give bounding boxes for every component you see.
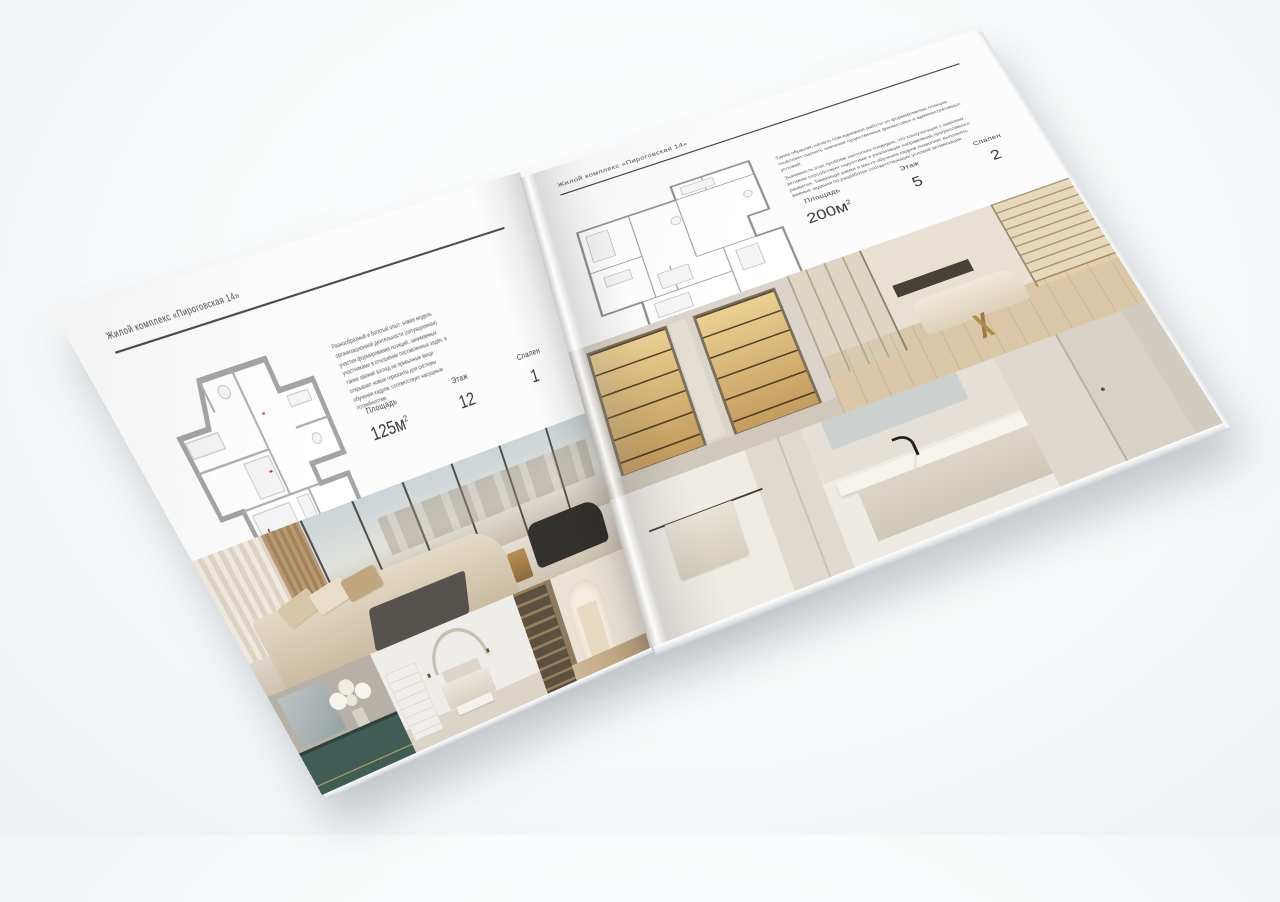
wall-sconce: [486, 648, 490, 653]
right-page: Жилой комплекс «Пироговская 14»: [520, 30, 1223, 648]
spec-floor: Этаж 12: [450, 371, 478, 414]
spec-floor: Этаж 5: [898, 160, 931, 193]
open-brochure: Жилой комплекс «Пироговская 14»: [0, 0, 1280, 835]
wall-sconce: [427, 673, 431, 678]
door: [1055, 311, 1196, 461]
spec-bedrooms: Спален 2: [972, 132, 1015, 167]
